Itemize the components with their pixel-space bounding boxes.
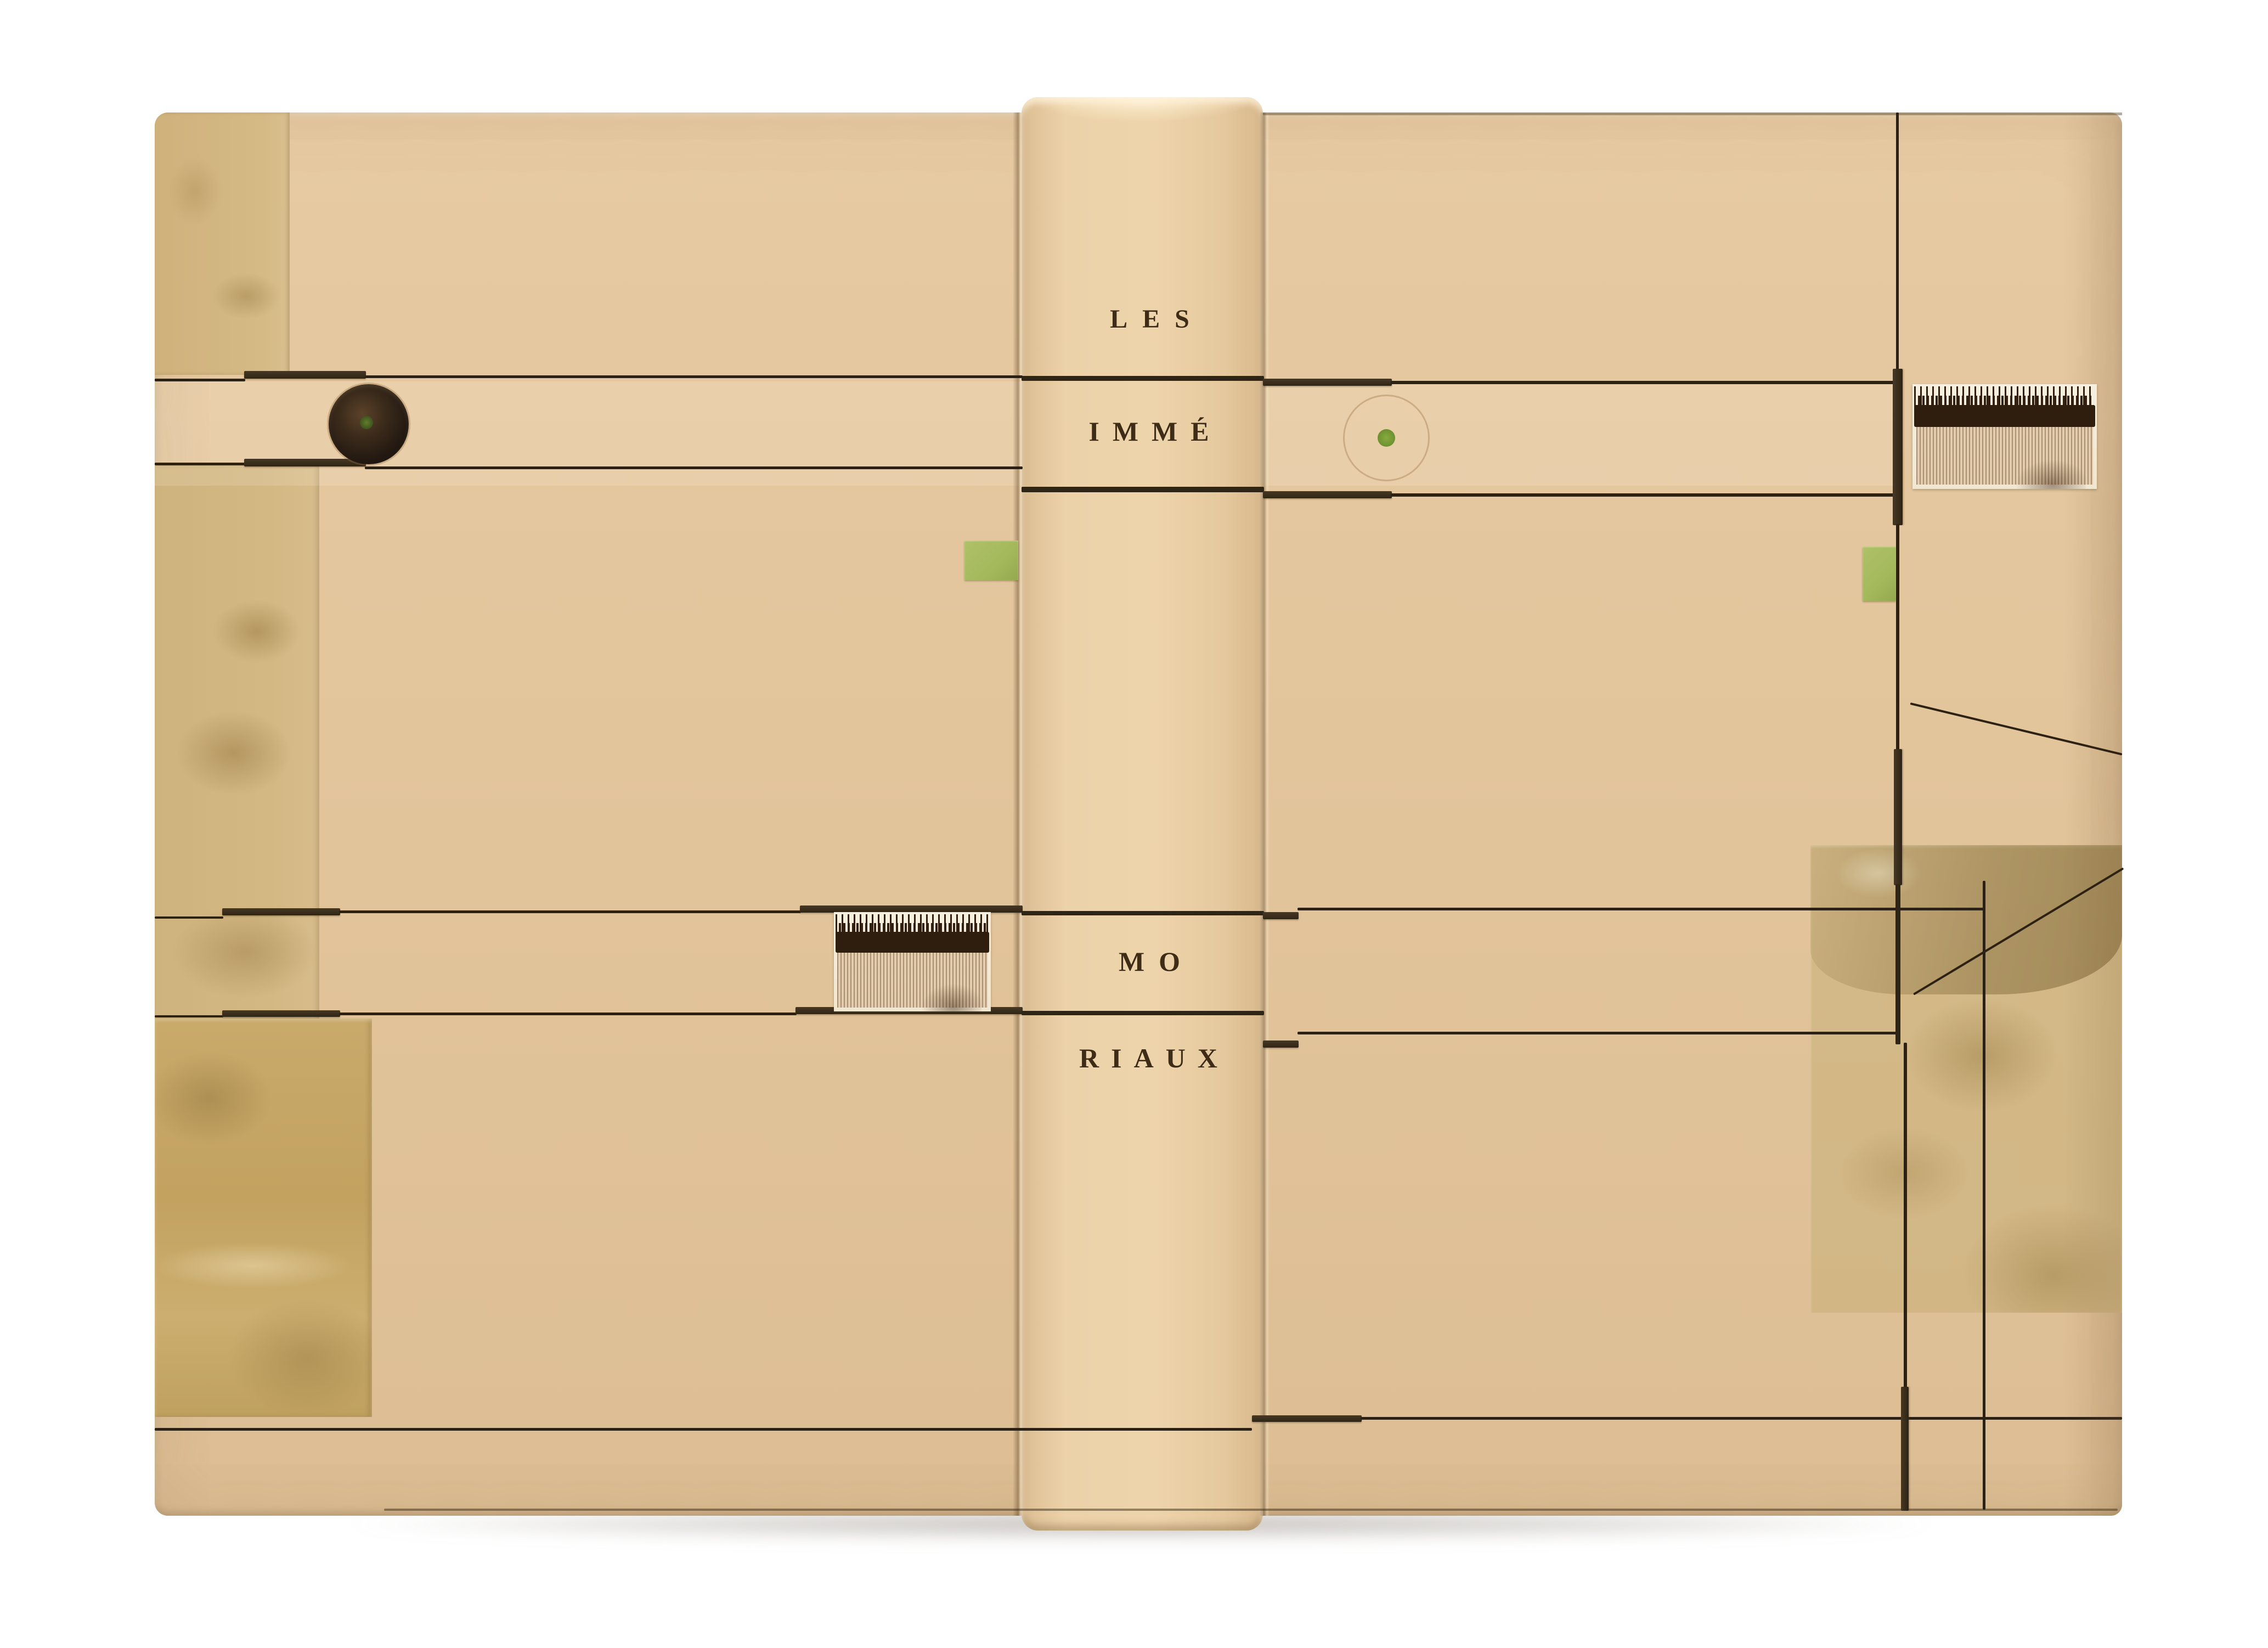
fringe-shade — [911, 967, 981, 1011]
left-cover-paper-band-top — [155, 113, 290, 375]
spine-title-line-1: LES — [1022, 303, 1278, 336]
line-row3-thin-right — [1297, 908, 1984, 910]
line-row3-thin-mid — [339, 910, 801, 913]
line-row4-onlay-left — [222, 1010, 340, 1017]
line-row2-spine — [1022, 487, 1264, 492]
line-row2-thin-right — [1391, 493, 1900, 497]
line-row1-thin-left — [155, 379, 245, 381]
line-row5-onlay-spine — [1252, 1415, 1362, 1422]
vline1-thin-bottom — [1904, 1043, 1907, 1388]
line-row4-thin-mid — [339, 1013, 797, 1015]
brush-fringe-patch-center — [834, 912, 991, 1011]
fringe-shade — [2003, 442, 2086, 489]
line-row4-thin-right — [1297, 1032, 1900, 1034]
green-square-right — [1863, 547, 1896, 601]
spine-title-line-4: RIAUX — [1022, 1042, 1275, 1075]
green-dot-left — [360, 416, 373, 429]
line-row3-spine — [1022, 911, 1264, 915]
vline1-onlay-a — [1893, 369, 1903, 525]
board-bottom-edge — [384, 1509, 2118, 1511]
line-row1-onlay-left — [244, 371, 366, 379]
vline1-onlay-b — [1894, 749, 1902, 885]
vline1-onlay-c — [1901, 1387, 1909, 1511]
spine-headcap-highlight — [1031, 97, 1253, 130]
line-row5-thin-left — [155, 1428, 1252, 1431]
brush-fringe-patch-right — [1912, 384, 2097, 489]
line-row4-thin-left — [155, 1015, 223, 1017]
board-top-edge — [1263, 113, 2122, 115]
green-dot-right — [1378, 429, 1395, 447]
fringe-dark-band — [1914, 405, 2095, 427]
vline1-med — [1895, 884, 1900, 1044]
line-row3-onlay-left — [222, 908, 340, 915]
line-row2-onlay-left — [244, 459, 366, 466]
line-row3-onlay-right — [1263, 912, 1299, 919]
line-row1-thin-right — [1391, 381, 1900, 384]
line-row5-thin-right — [1361, 1417, 2122, 1420]
line-row1-spine — [1022, 376, 1264, 381]
vline2 — [1983, 881, 1985, 1510]
line-row3-thin-left — [155, 916, 223, 919]
line-row1-thin-mid — [365, 375, 1023, 378]
fringe-dark-band — [836, 932, 989, 953]
line-row4-spine — [1022, 1011, 1264, 1015]
book-binding-photo: LES IMMÉ MO RIAUX — [0, 0, 2268, 1648]
spine-title-line-2: IMMÉ — [1022, 415, 1276, 448]
vline1-thin-top — [1896, 113, 1899, 370]
vline1-thin-mid — [1896, 524, 1899, 750]
left-cover-marbled-patch-bottom — [155, 1019, 372, 1417]
line-row2-thin-mid — [365, 466, 1023, 469]
line-row2-thin-left — [155, 463, 245, 465]
spine-title-line-3: MO — [1022, 945, 1277, 978]
right-cover-edge-shading — [2063, 113, 2122, 1516]
line-row1-onlay-right — [1263, 379, 1392, 386]
line-row2-onlay-right — [1263, 491, 1392, 498]
green-square-left — [964, 541, 1018, 580]
left-cover-paper-band-middle — [155, 465, 319, 1019]
